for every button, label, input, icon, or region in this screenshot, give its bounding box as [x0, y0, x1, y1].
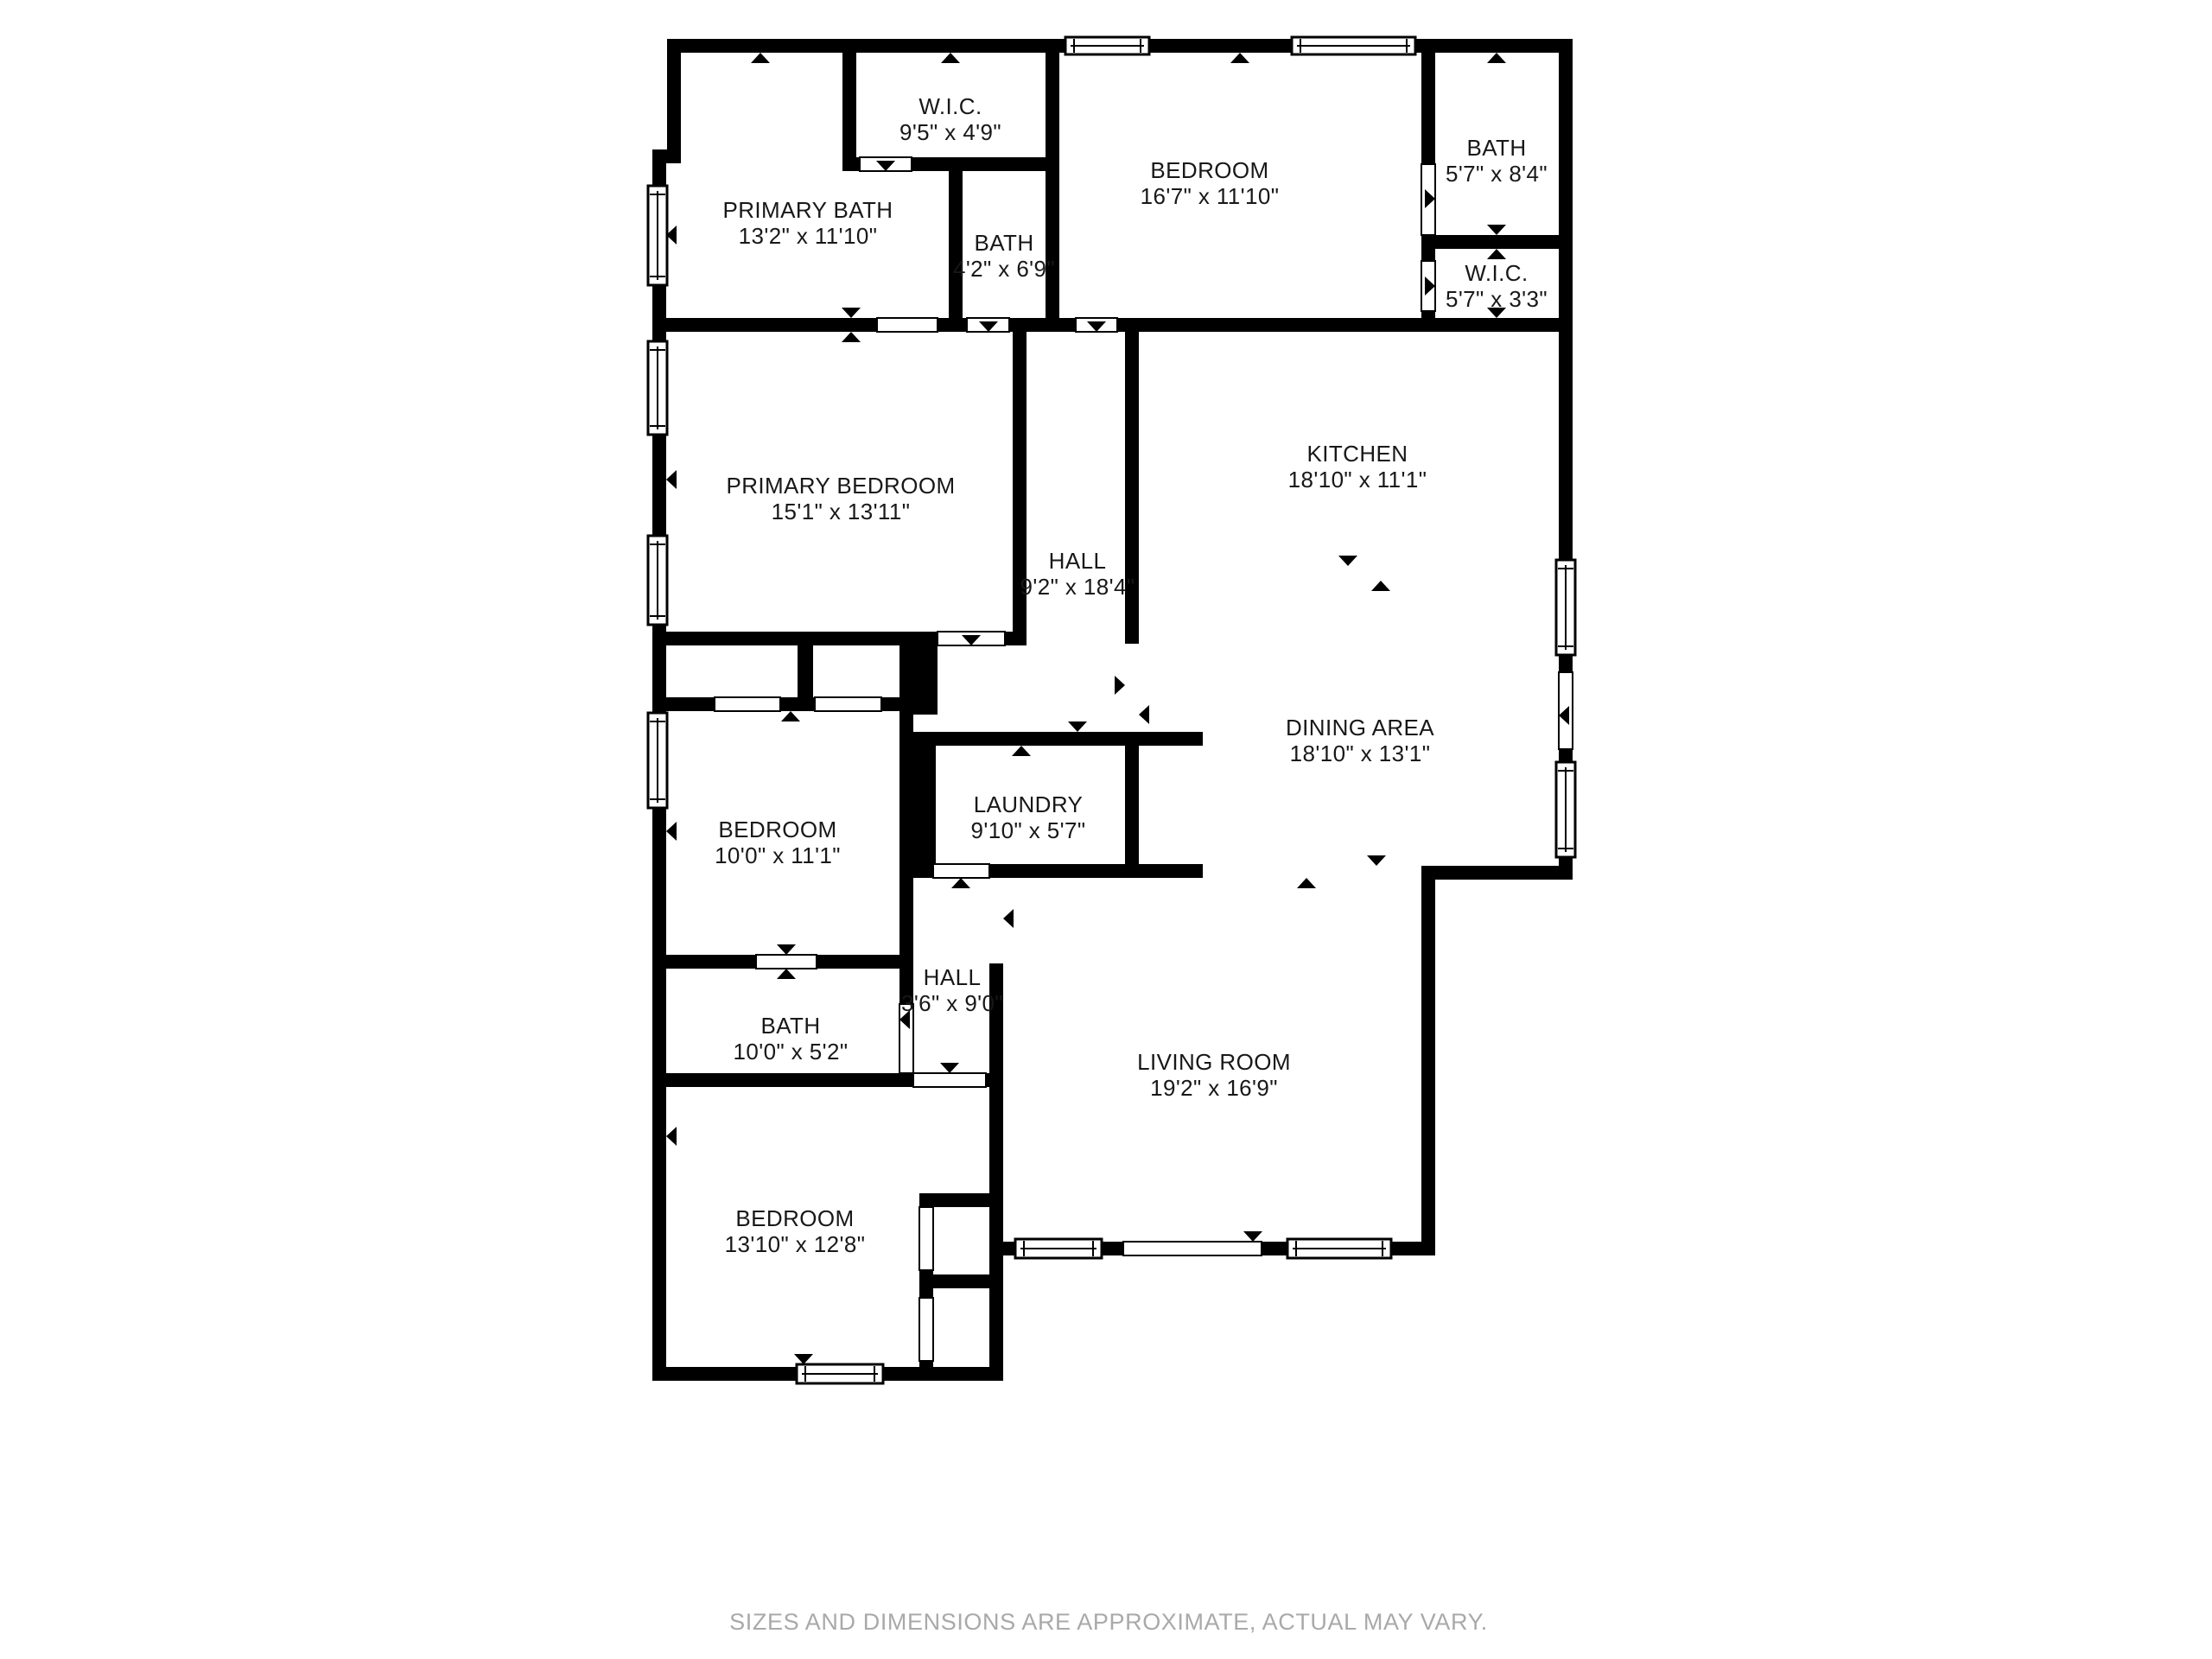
- window-icon: [1287, 1239, 1391, 1258]
- window-icon: [1556, 560, 1575, 655]
- door-marker-icon: [842, 332, 861, 342]
- door-marker-icon: [1297, 878, 1316, 888]
- door-opening: [756, 955, 817, 969]
- door-openings-layer: [715, 157, 1573, 1361]
- window-icon: [797, 1364, 883, 1383]
- entry-opening: [1123, 1242, 1262, 1255]
- door-marker-icon: [1371, 581, 1390, 591]
- window-icon: [1015, 1239, 1102, 1258]
- door-marker-icon: [666, 1127, 677, 1146]
- door-opening: [919, 1207, 933, 1270]
- door-marker-icon: [751, 53, 770, 63]
- door-marker-icon: [1115, 676, 1125, 695]
- door-opening: [877, 318, 938, 332]
- window-icon: [648, 713, 667, 808]
- door-marker-icon: [777, 944, 796, 955]
- door-opening: [919, 1298, 933, 1361]
- door-marker-icon: [1230, 53, 1249, 63]
- door-marker-icon: [1487, 53, 1506, 63]
- door-marker-icon: [1367, 855, 1386, 866]
- door-marker-icon: [794, 1354, 813, 1364]
- door-marker-icon: [1338, 556, 1357, 566]
- door-marker-icon: [781, 711, 800, 721]
- door-marker-icon: [666, 822, 677, 841]
- door-marker-icon: [1012, 746, 1031, 756]
- window-icon: [1292, 37, 1415, 54]
- door-marker-icon: [1243, 1231, 1262, 1242]
- door-marker-icon: [777, 969, 796, 979]
- floorplan-drawing: [0, 0, 2212, 1659]
- door-marker-icon: [940, 1063, 959, 1073]
- walls-layer: [652, 39, 1573, 1381]
- door-opening: [933, 864, 989, 878]
- door-marker-icon: [842, 308, 861, 318]
- floorplan-page: PRIMARY BATH 13'2" x 11'10" W.I.C. 9'5" …: [0, 0, 2212, 1659]
- door-marker-icon: [1003, 909, 1014, 928]
- window-icon: [648, 536, 667, 625]
- door-opening: [815, 697, 881, 711]
- door-marker-icon: [1487, 225, 1506, 235]
- door-marker-icon: [1139, 705, 1149, 724]
- window-icon: [648, 186, 667, 285]
- door-marker-icon: [951, 878, 970, 888]
- door-opening: [715, 697, 780, 711]
- window-icon: [1556, 762, 1575, 857]
- door-marker-icon: [1068, 721, 1087, 732]
- window-icon: [1065, 37, 1149, 54]
- door-marker-icon: [1487, 308, 1506, 318]
- door-marker-icon: [941, 53, 960, 63]
- door-opening: [913, 1073, 986, 1087]
- door-marker-icon: [1487, 249, 1506, 259]
- window-icon: [648, 341, 667, 435]
- footer-disclaimer: SIZES AND DIMENSIONS ARE APPROXIMATE, AC…: [729, 1609, 1488, 1636]
- door-marker-icon: [666, 470, 677, 489]
